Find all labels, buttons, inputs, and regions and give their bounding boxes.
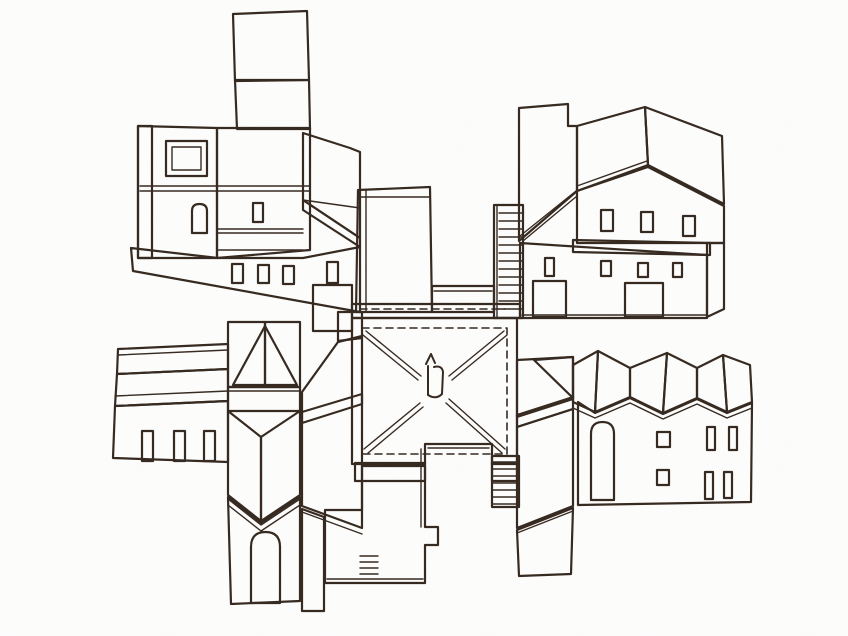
zz-window-1 bbox=[657, 432, 670, 447]
bt-arched-door bbox=[251, 532, 280, 603]
watercolor-illustration: Hand-drawn ink and watercolor drawing of… bbox=[0, 0, 848, 636]
notch-sill bbox=[432, 286, 494, 312]
rw-lower-pier bbox=[517, 508, 573, 576]
tl-left-edge-strip bbox=[138, 126, 152, 258]
tr-lower-window-4 bbox=[673, 263, 682, 277]
courtyard-x-diagonals bbox=[363, 331, 507, 453]
center-slab-wall bbox=[356, 187, 432, 312]
tr-upper-window-2 bbox=[641, 212, 653, 232]
lm-slot-window-2 bbox=[174, 431, 185, 461]
east-sawtooth-wing bbox=[573, 351, 752, 505]
zz-window-3 bbox=[707, 427, 715, 450]
tr-lower-window-1 bbox=[545, 258, 554, 276]
rw-top-wall bbox=[517, 357, 573, 417]
zz-window-2 bbox=[657, 470, 669, 485]
courtyard-monument bbox=[426, 354, 443, 397]
bt-top-block-right bbox=[265, 322, 300, 387]
tl-main-wall bbox=[217, 128, 310, 258]
bt-chevron-roof-right bbox=[261, 411, 300, 521]
south-center-structures bbox=[302, 312, 438, 611]
tl-apron-wall bbox=[131, 247, 360, 312]
lm-mid-band bbox=[115, 369, 228, 406]
zz-arched-window bbox=[591, 422, 614, 500]
tl-apron-window-3 bbox=[283, 266, 294, 284]
tl-small-window bbox=[253, 203, 263, 222]
tr-door-right bbox=[625, 283, 663, 317]
top-right-hip-roof-hall bbox=[519, 104, 724, 318]
tl-tower-shaft bbox=[235, 80, 310, 129]
lm-slot-window-1 bbox=[142, 431, 153, 461]
zz-roof-panel-6 bbox=[723, 355, 752, 412]
tl-apron-window-2 bbox=[258, 265, 269, 283]
right-wall-pier bbox=[517, 357, 573, 576]
tr-upper-window-1 bbox=[601, 210, 613, 231]
zz-window-6 bbox=[724, 472, 732, 498]
rw-eave-line bbox=[517, 511, 573, 533]
top-left-tower-block bbox=[131, 11, 360, 331]
rw-roof-triangle bbox=[534, 357, 573, 398]
center-slab-and-stairs bbox=[356, 187, 523, 318]
tr-lower-window-3 bbox=[638, 263, 648, 277]
tl-tower-cap bbox=[233, 11, 309, 81]
lower-stairs-treads bbox=[493, 462, 518, 504]
courtyard-lower-band-right bbox=[492, 463, 517, 481]
tl-side-roof-wedge bbox=[303, 133, 360, 238]
tr-upper-window-3 bbox=[683, 216, 695, 236]
tr-roof-slope-right bbox=[645, 107, 724, 204]
west-long-house bbox=[113, 344, 228, 462]
bc-lower-pier bbox=[302, 509, 324, 611]
tl-square-window-pane bbox=[172, 147, 201, 170]
lm-slot-window-3 bbox=[204, 431, 215, 461]
tl-apron-window-1 bbox=[232, 264, 243, 283]
illustration-canvas: Hand-drawn ink and watercolor drawing of… bbox=[0, 0, 848, 636]
tl-left-building-wall bbox=[138, 126, 217, 258]
slab-stairs-detail-lines bbox=[358, 190, 522, 318]
tl-arched-niche bbox=[192, 204, 207, 233]
tr-lower-window-2 bbox=[601, 261, 611, 276]
bt-chevron-roof-left bbox=[228, 411, 261, 521]
zz-window-4 bbox=[729, 427, 737, 450]
tr-door-left bbox=[533, 281, 566, 317]
south-tower bbox=[228, 322, 300, 604]
zz-roof-panel-4 bbox=[663, 353, 697, 413]
tl-apron-window-4 bbox=[327, 262, 338, 283]
zz-window-5 bbox=[705, 472, 713, 499]
zz-roof-panel-2 bbox=[595, 351, 630, 412]
zz-roof-panel-3 bbox=[630, 353, 667, 413]
bt-top-block-left bbox=[228, 322, 265, 387]
zz-roof-panel-1 bbox=[573, 351, 598, 412]
